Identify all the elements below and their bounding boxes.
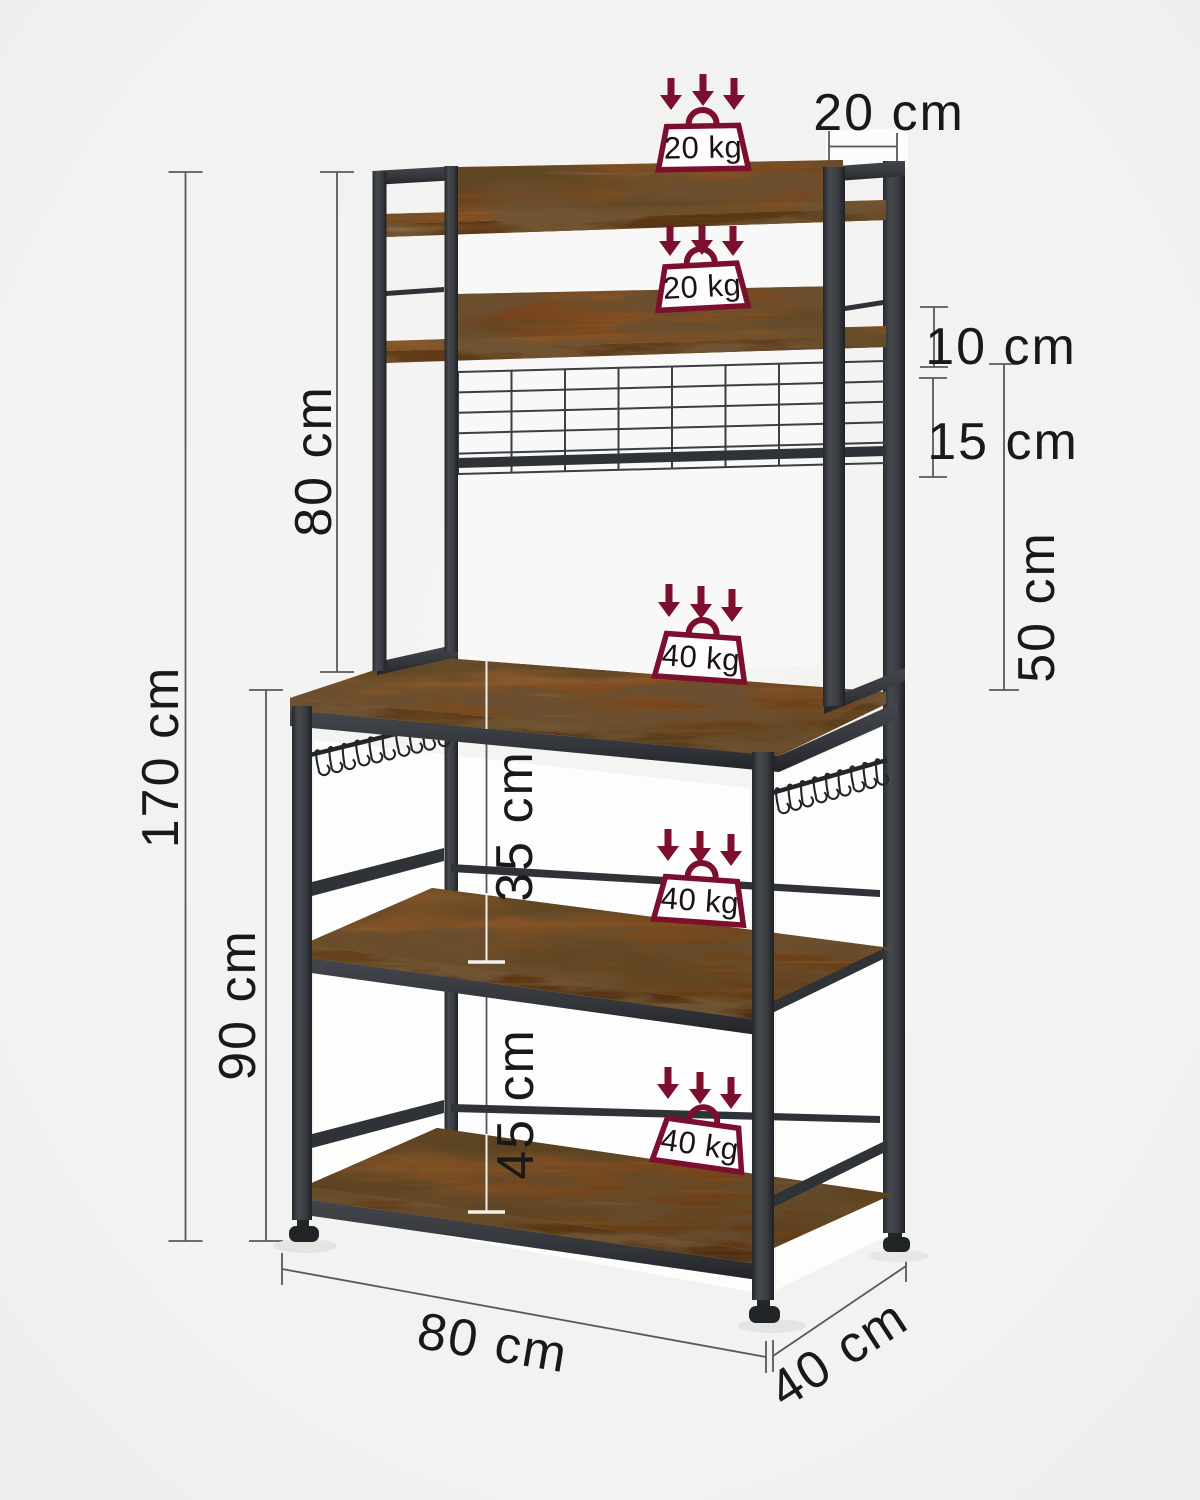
svg-text:20 kg: 20 kg [662, 267, 742, 306]
svg-text:40 kg: 40 kg [661, 637, 742, 677]
svg-text:35 cm: 35 cm [486, 750, 544, 902]
svg-text:80 cm: 80 cm [285, 385, 343, 537]
svg-text:10 cm: 10 cm [925, 318, 1077, 376]
svg-text:20 kg: 20 kg [664, 129, 743, 165]
svg-text:20 cm: 20 cm [813, 84, 965, 142]
svg-text:45 cm: 45 cm [487, 1028, 545, 1180]
svg-text:170 cm: 170 cm [132, 666, 190, 849]
svg-text:40 kg: 40 kg [660, 880, 741, 920]
svg-text:90 cm: 90 cm [209, 929, 267, 1081]
svg-text:15 cm: 15 cm [927, 413, 1079, 471]
svg-text:50 cm: 50 cm [1008, 531, 1066, 683]
